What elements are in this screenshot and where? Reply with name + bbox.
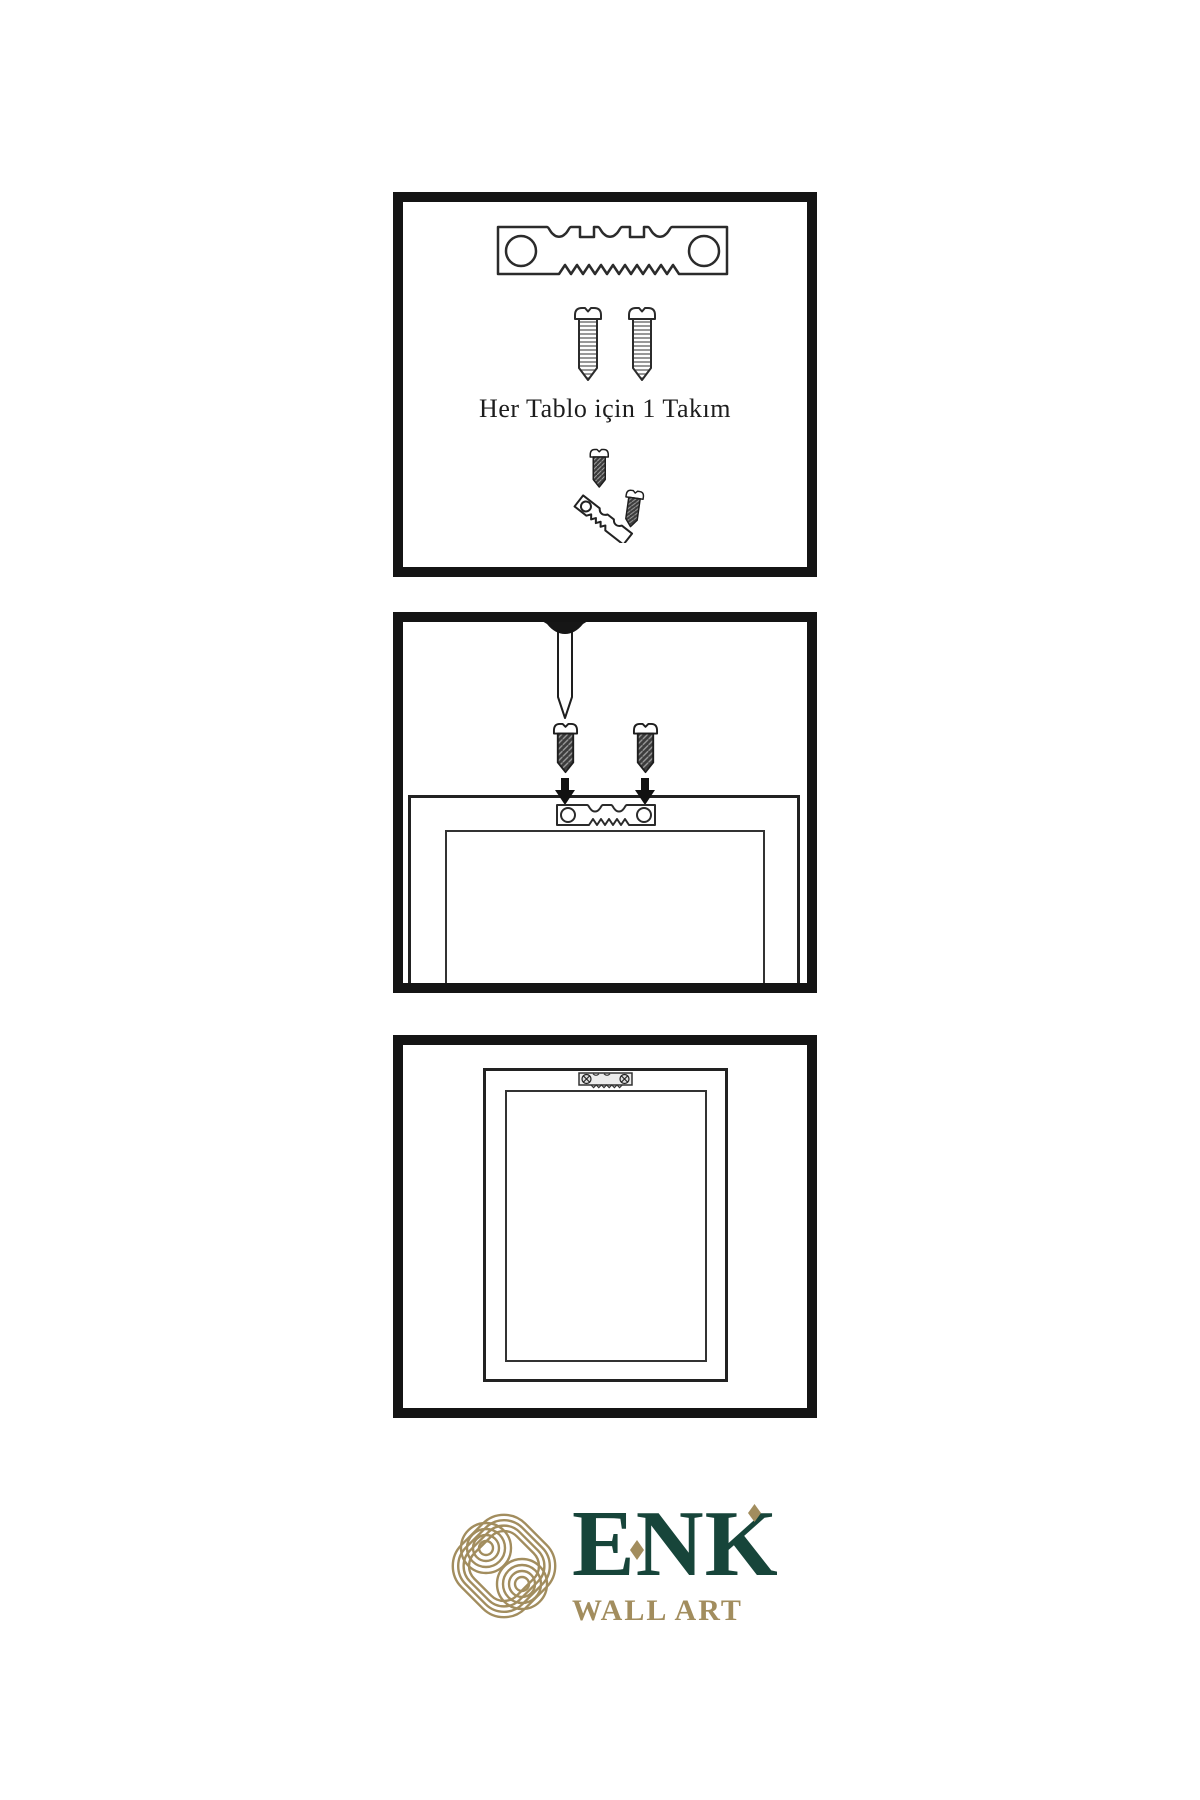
mounting-screw-icon: [625, 305, 659, 383]
mounting-screw-icon: [631, 722, 660, 774]
step-1-caption: Her Tablo için 1 Takım: [403, 394, 807, 424]
wall-nail-icon: [542, 621, 588, 721]
sawtooth-hanger-icon: [495, 223, 730, 278]
mounting-screw-icon: [571, 305, 605, 383]
mounted-sawtooth-hanger-icon: [578, 1072, 633, 1089]
step-1-panel: Her Tablo için 1 Takım: [393, 192, 817, 577]
brand-wordmark: ENK WALL ART: [572, 1498, 852, 1648]
mounting-screw-icon: [551, 722, 580, 774]
frame-back-inner-edge: [445, 830, 765, 993]
hanging-frame-inner-edge: [505, 1090, 707, 1362]
hanger-assembly-icon: [563, 448, 663, 543]
sawtooth-hanger-icon: [555, 802, 657, 828]
step-2-panel: [393, 612, 817, 993]
brand-subtitle: WALL ART: [572, 1594, 852, 1628]
brand-logo: ENK WALL ART: [440, 1498, 860, 1648]
step-3-panel: [393, 1035, 817, 1418]
brand-name: ENK: [572, 1498, 852, 1590]
knot-emblem-icon: [440, 1500, 568, 1632]
